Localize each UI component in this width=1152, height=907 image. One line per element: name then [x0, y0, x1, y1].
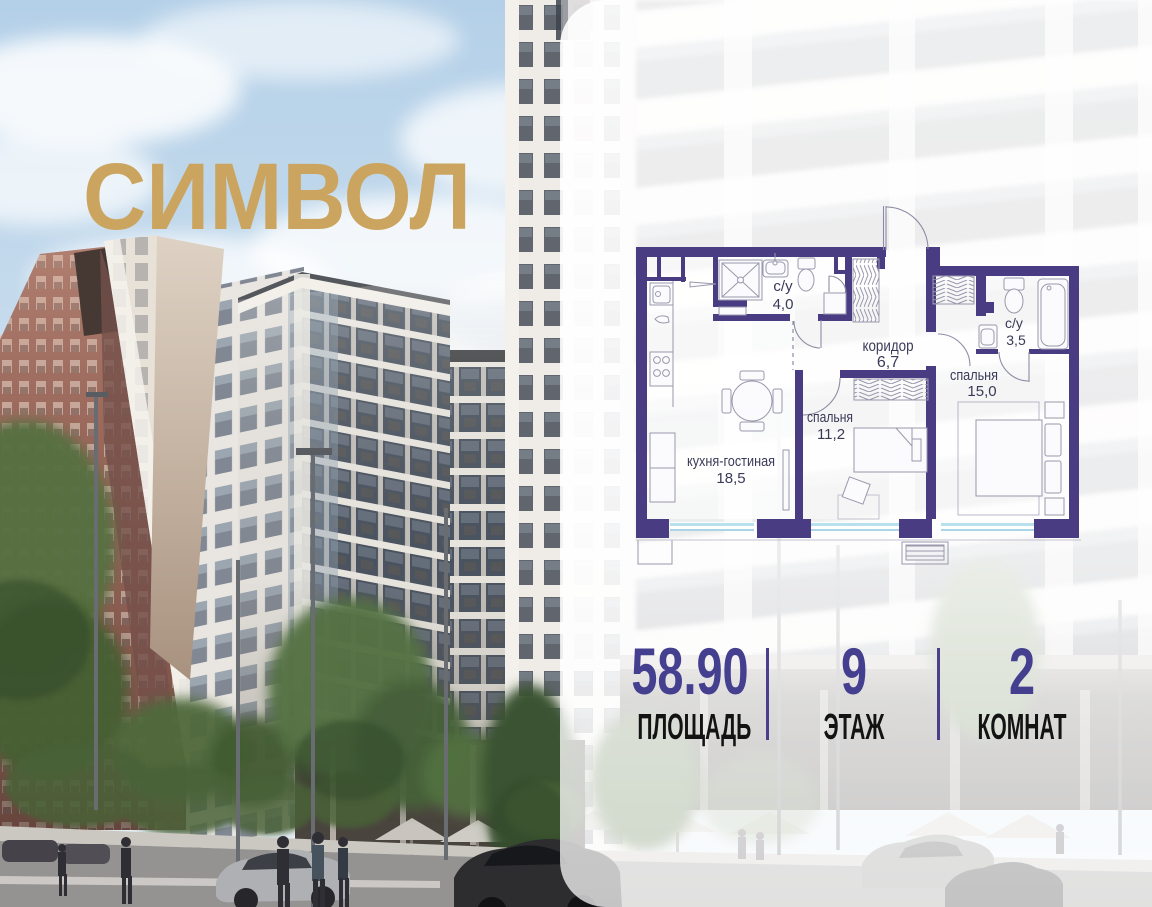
svg-text:с/у: с/у — [773, 278, 793, 295]
svg-text:6,7: 6,7 — [877, 354, 899, 371]
svg-text:коридор: коридор — [863, 338, 914, 355]
svg-text:15,0: 15,0 — [967, 383, 996, 400]
svg-text:4,0: 4,0 — [773, 296, 794, 313]
svg-text:18,5: 18,5 — [716, 470, 745, 487]
svg-text:кухня-гостиная: кухня-гостиная — [687, 453, 775, 470]
svg-text:с/у: с/у — [1005, 315, 1023, 331]
svg-text:3,5: 3,5 — [1006, 332, 1026, 348]
svg-text:спальня: спальня — [807, 409, 853, 426]
svg-text:спальня: спальня — [950, 367, 998, 384]
svg-text:11,2: 11,2 — [817, 426, 845, 443]
